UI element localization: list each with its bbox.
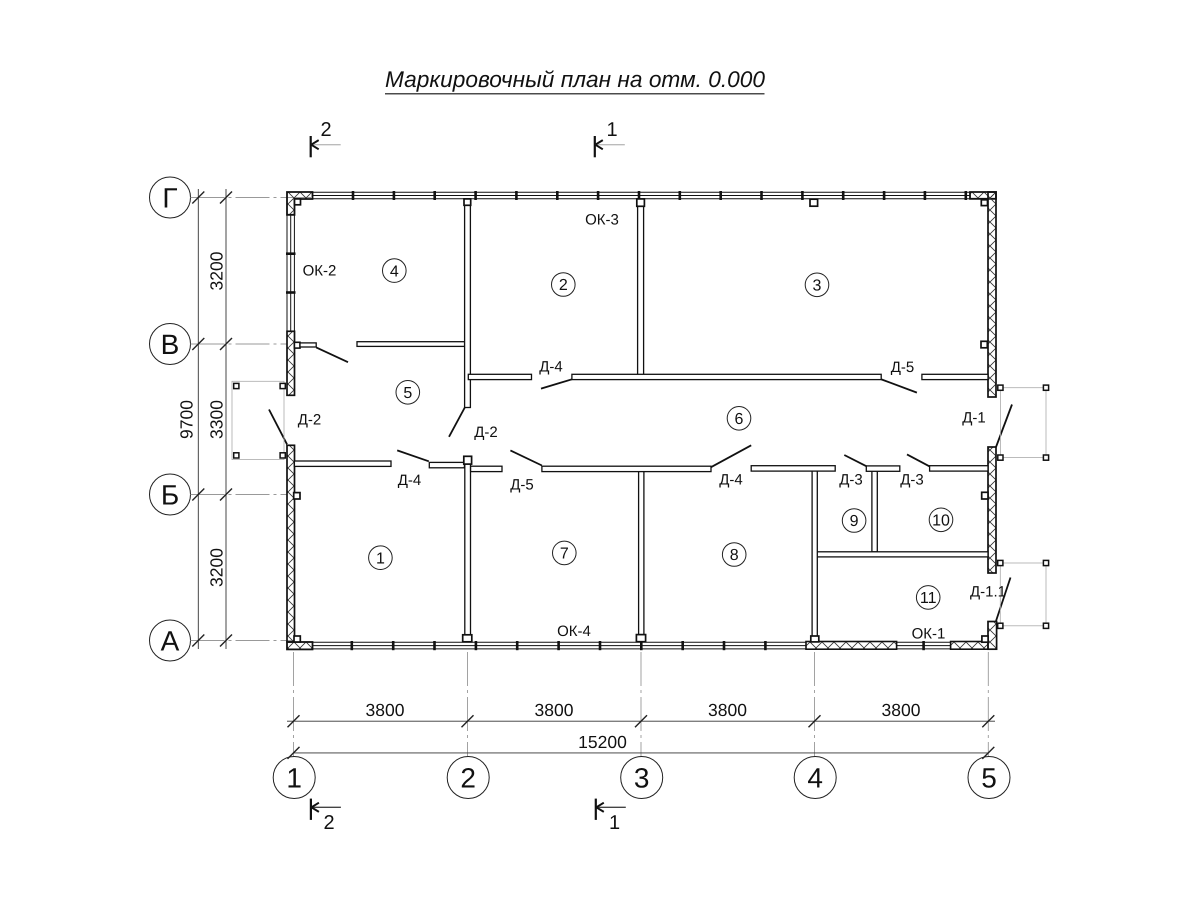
svg-text:ОК-2: ОК-2 xyxy=(303,263,337,280)
svg-text:Д-3: Д-3 xyxy=(839,472,863,489)
svg-text:3300: 3300 xyxy=(207,400,227,439)
svg-text:3: 3 xyxy=(634,763,650,794)
svg-text:Маркировочный план на отм. 0.0: Маркировочный план на отм. 0.000 xyxy=(385,66,765,92)
svg-text:3800: 3800 xyxy=(366,700,405,720)
svg-text:5: 5 xyxy=(403,385,412,402)
svg-text:ОК-3: ОК-3 xyxy=(585,212,619,229)
svg-text:2: 2 xyxy=(323,812,334,834)
svg-text:ОК-1: ОК-1 xyxy=(912,626,946,643)
svg-text:Д-1.1: Д-1.1 xyxy=(970,584,1006,601)
svg-text:Г: Г xyxy=(162,183,177,214)
svg-text:Д-4: Д-4 xyxy=(539,358,563,375)
svg-text:Д-5: Д-5 xyxy=(891,359,915,376)
svg-text:3: 3 xyxy=(813,278,822,295)
svg-text:4: 4 xyxy=(390,263,399,280)
svg-text:9: 9 xyxy=(850,513,859,530)
svg-text:11: 11 xyxy=(920,590,937,607)
svg-text:2: 2 xyxy=(460,763,476,794)
svg-text:Д-4: Д-4 xyxy=(719,472,743,489)
svg-text:Д-4: Д-4 xyxy=(398,472,422,489)
svg-text:Б: Б xyxy=(161,480,179,511)
svg-text:10: 10 xyxy=(932,513,950,530)
svg-text:9700: 9700 xyxy=(177,400,197,439)
svg-text:1: 1 xyxy=(286,763,302,794)
svg-text:Д-1: Д-1 xyxy=(962,410,986,427)
svg-text:5: 5 xyxy=(981,763,997,794)
svg-text:А: А xyxy=(161,626,180,657)
svg-text:В: В xyxy=(161,329,180,360)
svg-text:2: 2 xyxy=(559,277,568,294)
svg-text:1: 1 xyxy=(376,550,385,567)
svg-text:1: 1 xyxy=(609,812,620,834)
svg-text:15200: 15200 xyxy=(578,732,627,752)
svg-text:4: 4 xyxy=(807,763,823,794)
svg-text:3800: 3800 xyxy=(708,700,747,720)
svg-text:8: 8 xyxy=(730,547,739,564)
svg-text:Д-5: Д-5 xyxy=(510,477,534,494)
svg-text:ОК-4: ОК-4 xyxy=(557,623,591,640)
svg-text:1: 1 xyxy=(606,119,617,141)
svg-text:3200: 3200 xyxy=(207,548,227,587)
svg-text:3800: 3800 xyxy=(535,700,574,720)
svg-text:3200: 3200 xyxy=(207,251,227,290)
svg-text:7: 7 xyxy=(560,546,569,563)
svg-text:3800: 3800 xyxy=(882,700,921,720)
svg-text:Д-3: Д-3 xyxy=(900,472,924,489)
svg-text:2: 2 xyxy=(320,119,331,141)
svg-text:Д-2: Д-2 xyxy=(474,424,498,441)
svg-text:6: 6 xyxy=(735,411,744,428)
svg-text:Д-2: Д-2 xyxy=(298,412,322,429)
